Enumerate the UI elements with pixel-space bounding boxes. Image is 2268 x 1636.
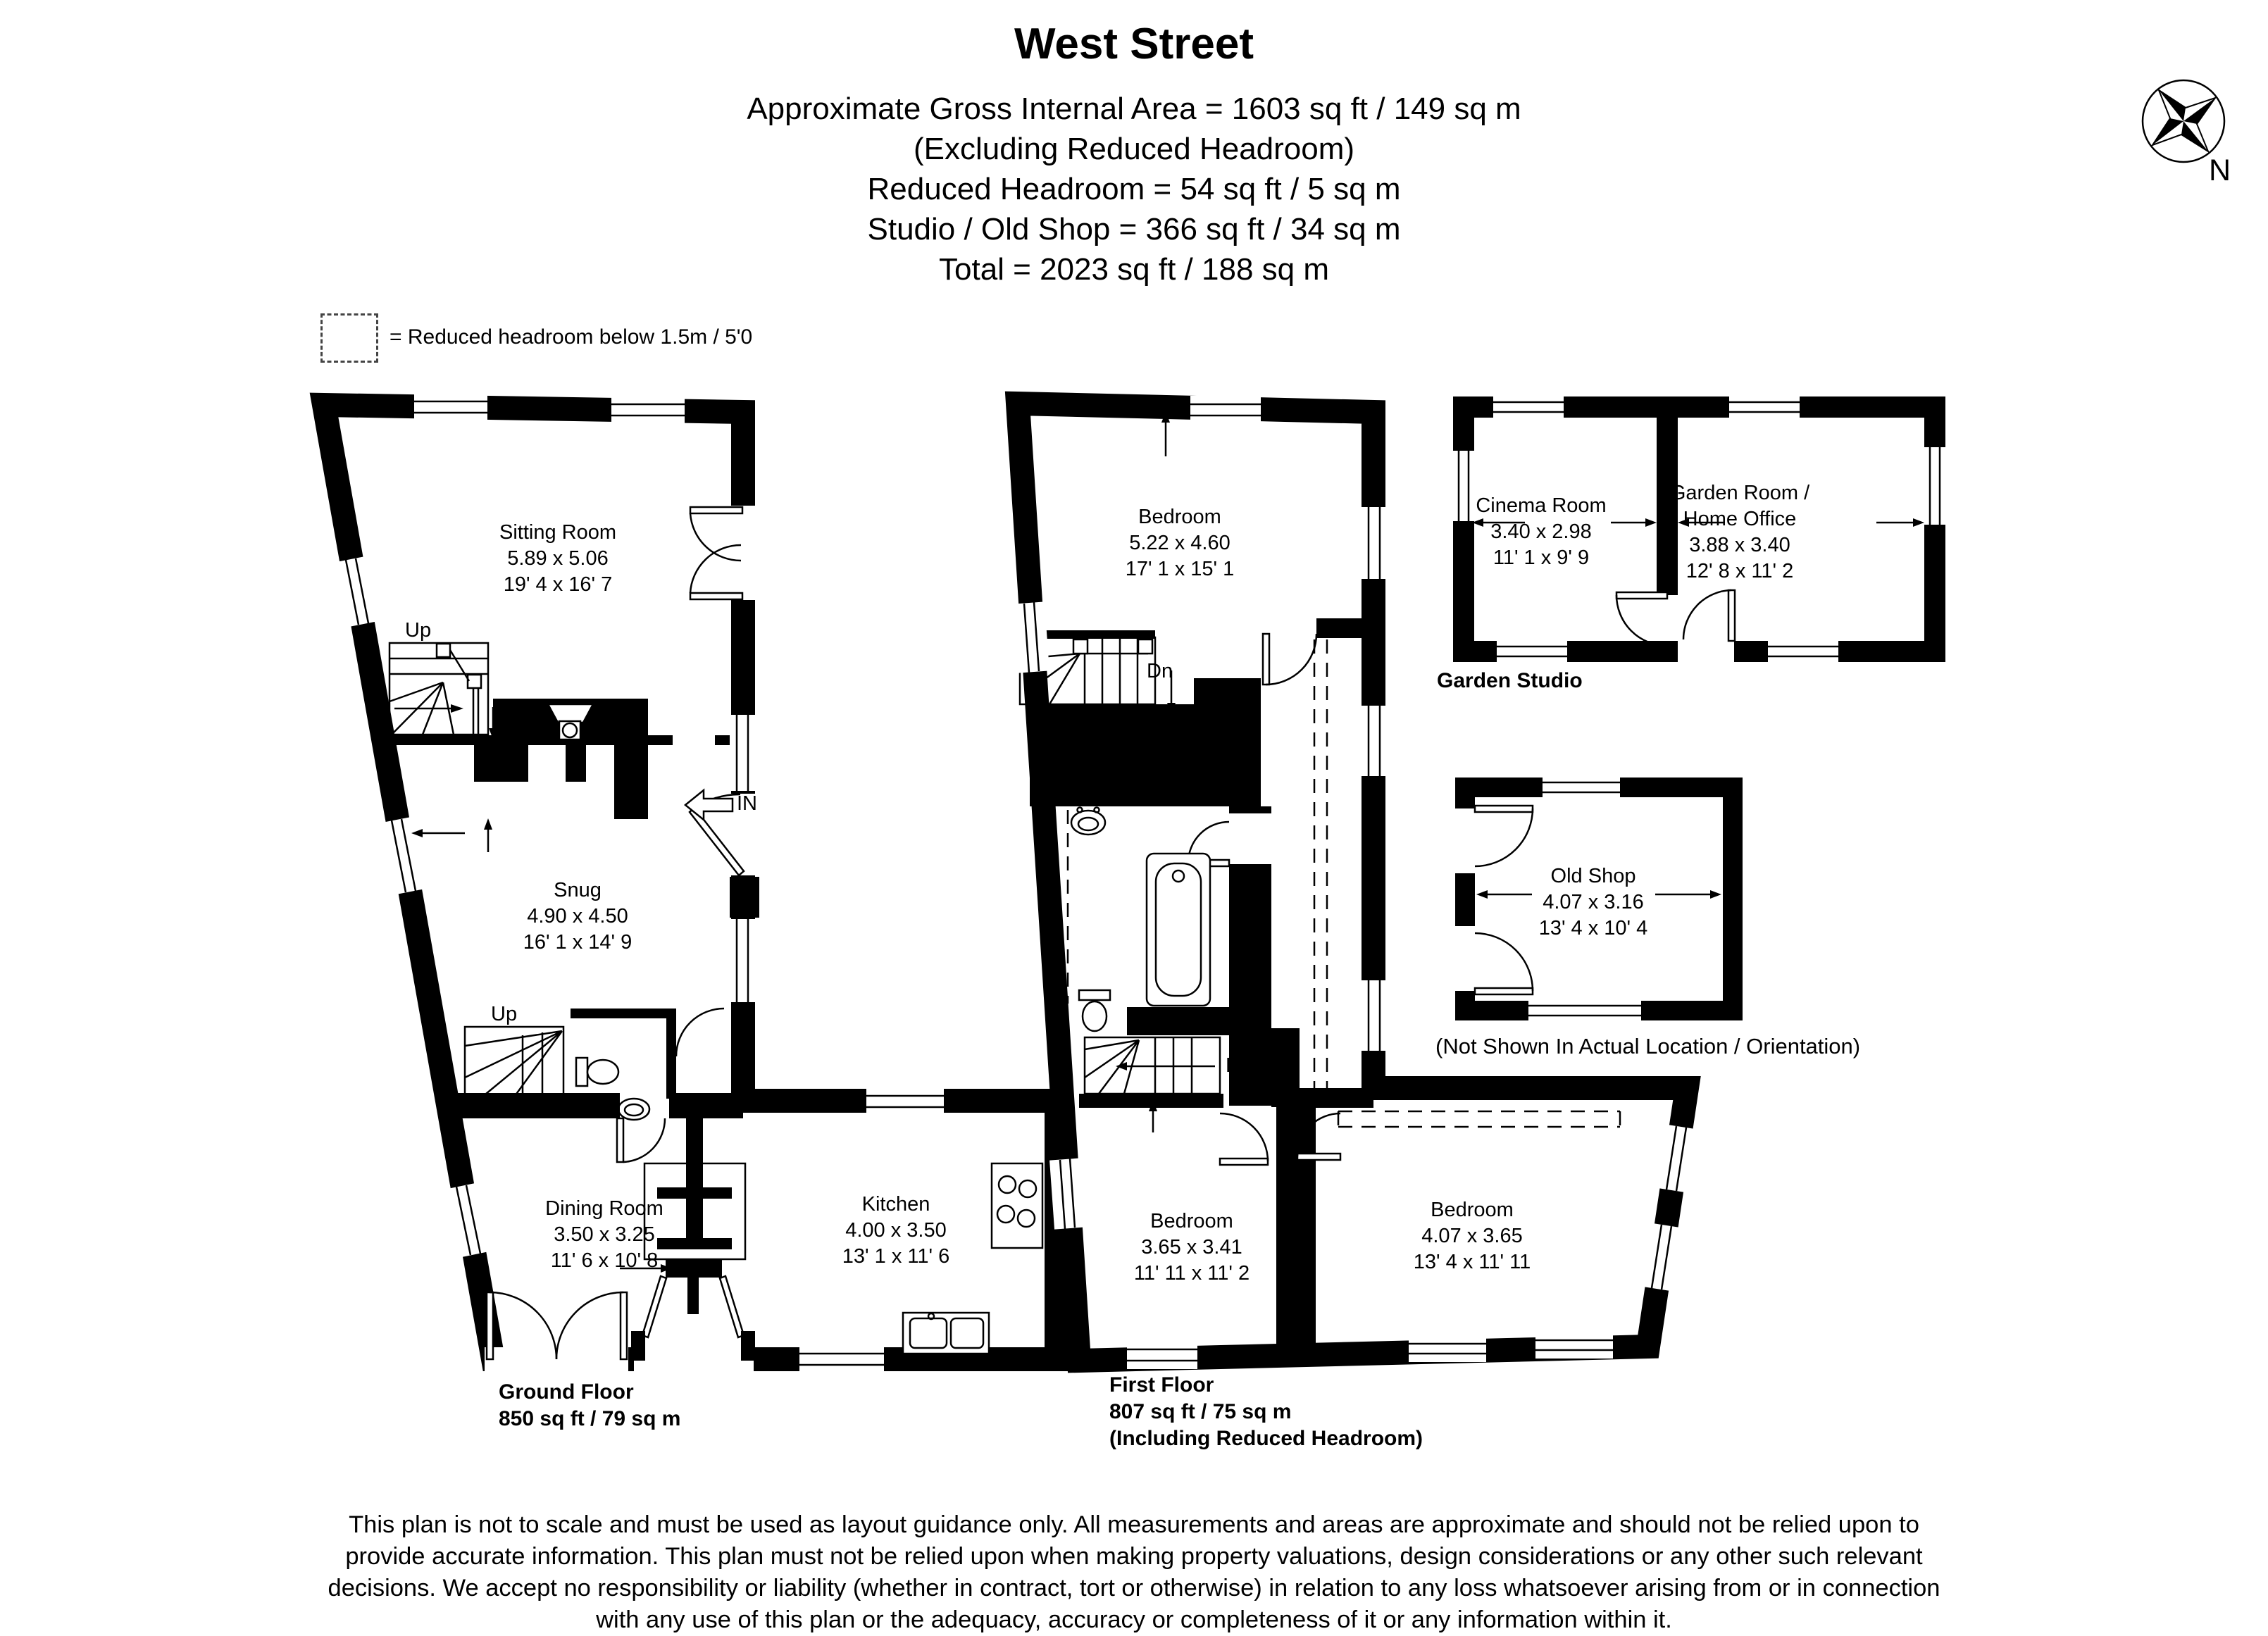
room-name: Kitchen <box>842 1192 949 1218</box>
room-name: Snug <box>523 878 633 904</box>
page-title: West Street <box>747 18 1521 70</box>
room-size-metric: 4.07 x 3.16 <box>1539 889 1648 916</box>
floor-area: 850 sq ft / 79 sq m <box>499 1406 680 1432</box>
room-size-imperial: 11' 11 x 11' 2 <box>1134 1261 1250 1287</box>
room-label-cinema-room: Cinema Room 3.40 x 2.98 11' 1 x 9' 9 <box>1476 493 1606 571</box>
room-name: Sitting Room <box>499 520 616 546</box>
room-size-metric: 3.88 x 3.40 <box>1670 532 1809 558</box>
room-size-imperial: 19' 4 x 16' 7 <box>499 572 616 598</box>
room-label-snug: Snug 4.90 x 4.50 16' 1 x 14' 9 <box>523 878 633 956</box>
room-name: Cinema Room <box>1476 493 1606 519</box>
floorplan-page: { "colors": {"wall": "#000000", "backgro… <box>0 0 2268 1622</box>
header-area-line: Approximate Gross Internal Area = 1603 s… <box>747 89 1521 129</box>
floor-note: (Including Reduced Headroom) <box>1109 1425 1423 1452</box>
legend-swatch <box>320 313 378 363</box>
floor-name: Ground Floor <box>499 1379 680 1406</box>
room-label-old-shop: Old Shop 4.07 x 3.16 13' 4 x 10' 4 <box>1539 863 1648 942</box>
disclaimer-text: This plan is not to scale and must be us… <box>306 1509 1962 1636</box>
entrance-in-label: IN <box>737 793 757 814</box>
room-size-metric: 5.22 x 4.60 <box>1126 530 1235 556</box>
room-label-bedroom-3: Bedroom 4.07 x 3.65 13' 4 x 11' 11 <box>1414 1197 1531 1275</box>
room-label-bedroom-1: Bedroom 5.22 x 4.60 17' 1 x 15' 1 <box>1126 504 1235 582</box>
floor-area: 807 sq ft / 75 sq m <box>1109 1399 1423 1425</box>
room-name: Old Shop <box>1539 863 1648 889</box>
compass-rose <box>2143 80 2224 162</box>
room-name-line2: Home Office <box>1670 506 1809 532</box>
floor-name: First Floor <box>1109 1372 1423 1399</box>
room-label-kitchen: Kitchen 4.00 x 3.50 13' 1 x 11' 6 <box>842 1192 949 1270</box>
room-size-imperial: 11' 6 x 10' 8 <box>545 1248 663 1274</box>
room-size-imperial: 17' 1 x 15' 1 <box>1126 556 1235 582</box>
room-size-imperial: 16' 1 x 14' 9 <box>523 930 633 956</box>
room-name: Dining Room <box>545 1196 663 1222</box>
first-floor-title: First Floor 807 sq ft / 75 sq m (Includi… <box>1109 1372 1423 1452</box>
room-size-metric: 3.50 x 3.25 <box>545 1222 663 1248</box>
room-size-metric: 5.89 x 5.06 <box>499 546 616 572</box>
room-size-imperial: 11' 1 x 9' 9 <box>1476 545 1606 571</box>
room-name: Bedroom <box>1414 1197 1531 1223</box>
room-size-imperial: 12' 8 x 11' 2 <box>1670 558 1809 585</box>
room-name: Bedroom <box>1126 504 1235 530</box>
plan-header: West Street Approximate Gross Internal A… <box>747 18 1521 289</box>
stairs-up-label-1: Up <box>405 620 431 641</box>
room-name: Garden Room / <box>1670 480 1809 506</box>
old-shop-note: (Not Shown In Actual Location / Orientat… <box>1435 1034 1860 1059</box>
room-label-sitting-room: Sitting Room 5.89 x 5.06 19' 4 x 16' 7 <box>499 520 616 598</box>
room-label-bedroom-2: Bedroom 3.65 x 3.41 11' 11 x 11' 2 <box>1134 1209 1250 1287</box>
room-label-garden-room: Garden Room / Home Office 3.88 x 3.40 12… <box>1670 480 1809 585</box>
room-size-metric: 4.00 x 3.50 <box>842 1218 949 1244</box>
header-reduced-line: Reduced Headroom = 54 sq ft / 5 sq m <box>747 169 1521 209</box>
room-size-metric: 4.07 x 3.65 <box>1414 1223 1531 1249</box>
header-total-line: Total = 2023 sq ft / 188 sq m <box>747 249 1521 289</box>
stairs-dn-label-2: Dn <box>1226 1055 1252 1076</box>
room-name: Bedroom <box>1134 1209 1250 1235</box>
room-size-metric: 3.40 x 2.98 <box>1476 519 1606 545</box>
legend-label: = Reduced headroom below 1.5m / 5'0 <box>390 325 752 349</box>
header-studio-line: Studio / Old Shop = 366 sq ft / 34 sq m <box>747 209 1521 249</box>
garden-studio-title: Garden Studio <box>1437 668 1583 694</box>
stairs-up-label-2: Up <box>491 1004 517 1025</box>
room-size-imperial: 13' 1 x 11' 6 <box>842 1244 949 1270</box>
compass-north-label: N <box>2209 154 2231 188</box>
stairs-dn-label-1: Dn <box>1147 661 1173 682</box>
room-size-imperial: 13' 4 x 11' 11 <box>1414 1249 1531 1275</box>
room-size-metric: 3.65 x 3.41 <box>1134 1235 1250 1261</box>
header-excluding-line: (Excluding Reduced Headroom) <box>747 129 1521 169</box>
room-size-imperial: 13' 4 x 10' 4 <box>1539 916 1648 942</box>
ground-floor-title: Ground Floor 850 sq ft / 79 sq m <box>499 1379 680 1432</box>
room-label-dining-room: Dining Room 3.50 x 3.25 11' 6 x 10' 8 <box>545 1196 663 1274</box>
room-size-metric: 4.90 x 4.50 <box>523 904 633 930</box>
